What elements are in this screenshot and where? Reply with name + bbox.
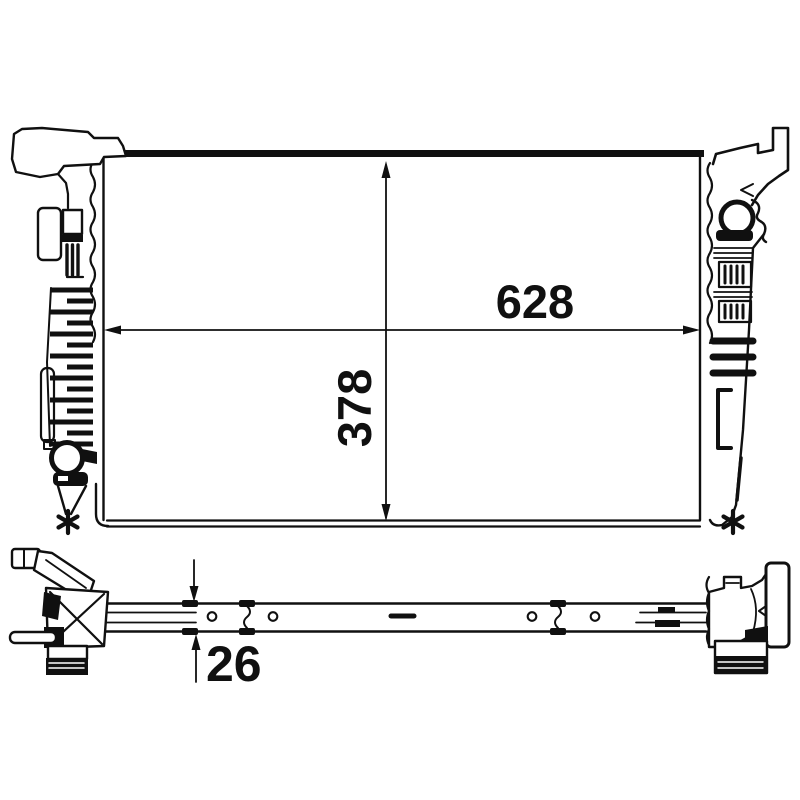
depth-arrow-up-icon [192,634,201,650]
tube-joint-squiggle [244,606,250,628]
mounting-flange [766,563,789,647]
foot-block-left [46,658,88,675]
width-arrow-right-icon [683,326,700,335]
depth-arrow-down-icon [190,586,199,602]
radiator-technical-drawing: 628 378 [0,0,800,800]
connector-bar [62,235,83,242]
core-top-bar [100,150,704,157]
connector-stripes [67,245,78,275]
mounting-hole [591,612,600,621]
depth-dimension: 26 [190,560,262,692]
right-end-bracket [707,563,790,673]
foot-collar [48,646,87,659]
tube-joint [550,628,566,635]
asterisk-icon-left [59,511,78,533]
bracket-notch [741,184,753,196]
tube-end-right-bottom [655,620,680,627]
height-dimension: 378 [328,161,391,521]
tank-bottom-left [96,484,108,526]
bracket-arm [58,174,68,208]
rib-lines-a [714,248,752,258]
right-tank [710,128,788,525]
left-end-bracket [10,549,108,675]
tube-end-right-top [658,607,675,613]
left-tank-seam [91,162,96,342]
mounting-hole [208,612,217,621]
height-arrow-up-icon [382,161,391,178]
width-arrow-left-icon [104,326,121,335]
height-dimension-label: 378 [328,369,381,447]
tube-joints [182,600,566,635]
technical-drawing-page: 628 378 [0,0,800,800]
right-tank-seam [708,163,713,343]
connector-block-inner [63,210,82,234]
core-side-edges [104,157,701,520]
rib-lines-b [714,292,752,297]
clip-bracket [718,390,731,448]
foot-block-right [715,656,767,673]
mounting-hole [269,612,278,621]
drain-bar-slot [58,476,68,481]
port-under-bar [716,230,753,241]
bracket-blob-upper [42,592,61,620]
side-pin [10,632,56,643]
tank-taper-left [58,486,86,514]
mounting-hole [528,612,537,621]
mounting-bracket-top-left [12,128,126,177]
width-dimension: 628 [104,275,700,335]
hose-port-right [721,202,753,234]
hose-port-left [52,443,83,474]
height-arrow-down-icon [382,504,391,521]
tube-joint [182,628,198,635]
tube-joint-squiggle [555,606,561,628]
tube-joint [182,600,198,607]
connector-block-outer [38,208,61,260]
side-view [10,549,789,675]
width-dimension-label: 628 [496,275,574,328]
inner-rails-left [96,613,196,623]
left-tank [12,128,126,526]
tube-joint [239,628,255,635]
core-bottom-edge [107,521,700,527]
fin-strip [50,290,93,444]
depth-dimension-label: 26 [206,636,262,692]
mounting-bracket-top-right [713,128,788,205]
